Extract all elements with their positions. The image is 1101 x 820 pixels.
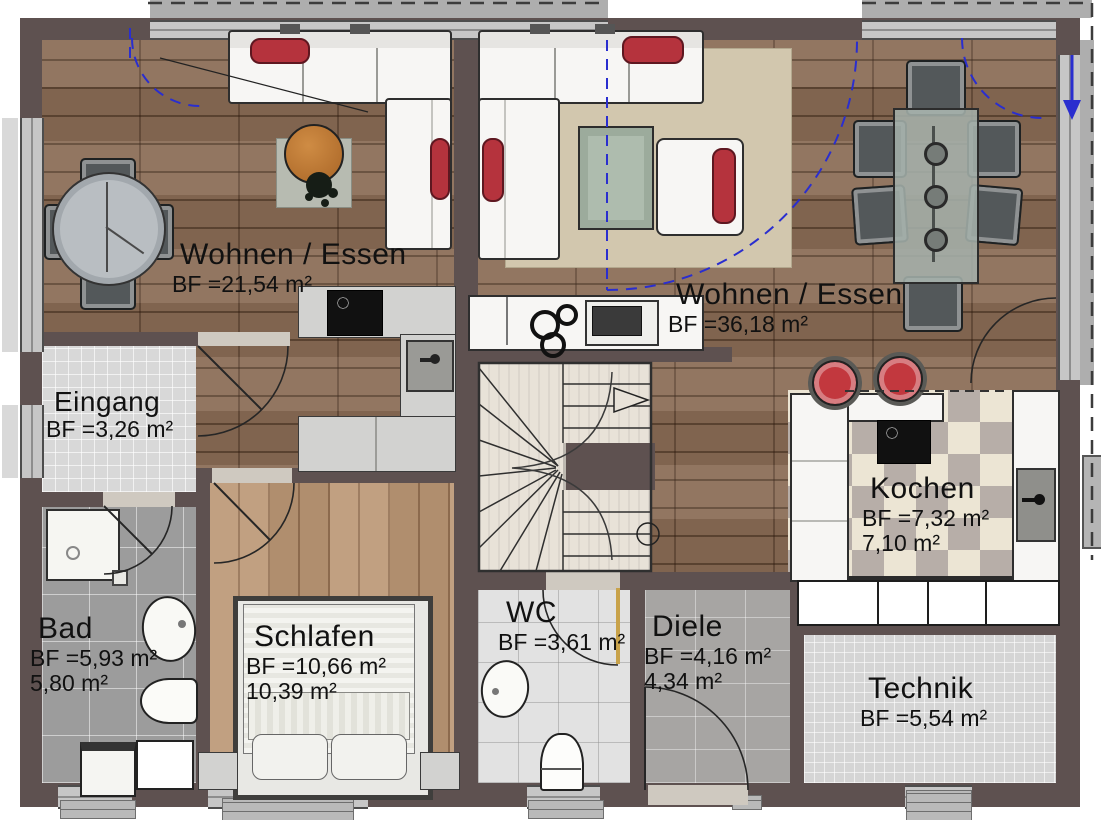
floor-plan: Wohnen / Essen BF =21,54 m² Wohnen / Ess…: [0, 0, 1101, 820]
room-area: BF =4,16 m²: [644, 644, 771, 670]
room-name: Diele: [644, 610, 771, 644]
window-sill-left2: [2, 405, 18, 478]
steps-outside-wc: [528, 800, 604, 819]
sofa-headrest: [350, 24, 370, 34]
room-label-schlafen: Schlafen BF =10,66 m² 10,39 m²: [246, 620, 386, 705]
washing-machine: [136, 740, 194, 790]
stair-void: [563, 443, 655, 490]
coffee-table: [578, 126, 654, 230]
sofa-headrest: [280, 24, 300, 34]
faucet-icon: [178, 620, 186, 628]
steps-outside-technik: [906, 790, 972, 820]
room-area: BF =5,54 m²: [860, 706, 987, 732]
room-name: Technik: [860, 672, 987, 706]
door-opening-schlafen: [212, 468, 292, 483]
kitchen-counter-left: [298, 416, 456, 472]
room-label-wohnen-essen-right: Wohnen / Essen BF =36,18 m²: [668, 278, 903, 337]
window-top-right-unit: [862, 20, 1056, 40]
room-area: 4,34 m²: [644, 669, 771, 695]
room-area: BF =36,18 m²: [668, 312, 903, 338]
window-left-eingang: [20, 405, 44, 478]
terrace-strip-right-side: [1080, 40, 1094, 385]
room-area: 7,10 m²: [862, 531, 989, 557]
sideboard-cabinet: [470, 297, 508, 345]
kitchen-sink-right: [1016, 468, 1056, 542]
cabinet-row: [797, 580, 1060, 626]
room-label-wc: WC BF =3,61 m²: [498, 596, 625, 655]
outdoor-unit: [1082, 455, 1101, 549]
room-label-bad: Bad BF =5,93 m² 5,80 m²: [30, 612, 157, 697]
candle-icon: [924, 142, 948, 166]
nightstand: [198, 752, 238, 790]
shower-drain-icon: [66, 546, 80, 560]
room-area: BF =7,32 m²: [862, 506, 989, 532]
candle-icon: [924, 185, 948, 209]
toilet: [540, 733, 584, 791]
washing-machine: [80, 742, 136, 797]
sofa-cushion-red: [482, 138, 504, 202]
door-opening-wc: [546, 572, 620, 590]
room-area: BF =3,61 m²: [498, 630, 625, 656]
shower: [46, 509, 120, 581]
terrace-strip-left: [150, 0, 608, 18]
room-area: BF =5,93 m²: [30, 646, 157, 672]
steps-outside-schlafen: [222, 798, 354, 820]
dining-chair: [903, 276, 963, 332]
room-name: Schlafen: [246, 620, 386, 654]
sideboard-appliance: [592, 306, 642, 336]
wall-eingang-top: [20, 332, 198, 346]
sofa-cushion-red: [430, 138, 450, 200]
room-area: BF =3,26 m²: [46, 417, 173, 443]
door-opening-diele-entry: [648, 785, 748, 805]
candle-icon: [924, 228, 948, 252]
toilet-detail: [541, 768, 581, 770]
sofa-cushion-red: [622, 36, 684, 64]
faucet-icon: [492, 688, 499, 695]
room-area: BF =21,54 m²: [172, 272, 407, 298]
terrace-strip-right: [862, 0, 1092, 18]
room-name: Kochen: [862, 472, 989, 506]
room-label-technik: Technik BF =5,54 m²: [860, 672, 987, 731]
sink-icon: [556, 304, 578, 326]
bed-pillow: [331, 734, 407, 780]
kitchen-sink-left: [406, 340, 454, 392]
faucet-icon: [430, 354, 440, 364]
sink-icon: [540, 332, 566, 358]
room-name: Bad: [30, 612, 157, 646]
room-area: 10,39 m²: [246, 679, 386, 705]
sofa-headrest: [530, 24, 550, 34]
wall-bad-schlafen: [196, 468, 210, 783]
nightstand: [420, 752, 460, 790]
door-opening-bad: [103, 492, 175, 507]
steps-outside-bad: [60, 800, 136, 819]
room-area: BF =10,66 m²: [246, 654, 386, 680]
plant: [306, 172, 332, 198]
bed-pillow: [252, 734, 328, 780]
sofa-headrest: [595, 24, 615, 34]
room-label-wohnen-essen-left: Wohnen / Essen BF =21,54 m²: [172, 238, 407, 297]
room-name: WC: [498, 596, 625, 630]
bar-stool: [812, 360, 858, 406]
armchair-cushion-red: [712, 148, 736, 224]
kitchen-counter-right: [790, 393, 849, 582]
window-sill-left1: [2, 118, 18, 352]
room-area: 5,80 m²: [30, 671, 157, 697]
sofa-cushion-red: [250, 38, 310, 64]
window-right-living: [1058, 55, 1082, 380]
room-label-diele: Diele BF =4,16 m² 4,34 m²: [644, 610, 771, 695]
window-left-living: [20, 118, 44, 352]
faucet-icon: [1034, 494, 1045, 505]
room-label-eingang: Eingang BF =3,26 m²: [46, 386, 173, 443]
room-name: Eingang: [46, 386, 173, 417]
wall-wc-diele-top: [454, 572, 794, 590]
room-label-kochen: Kochen BF =7,32 m² 7,10 m²: [862, 472, 989, 557]
room-name: Wohnen / Essen: [668, 278, 903, 312]
door-opening-eingang: [198, 332, 290, 346]
shower-detail: [112, 570, 128, 586]
bar-stool: [877, 356, 923, 402]
room-name: Wohnen / Essen: [172, 238, 407, 272]
cooktop-right: [877, 420, 931, 464]
wall-wc-diele: [630, 572, 645, 783]
wall-party: [454, 18, 478, 783]
